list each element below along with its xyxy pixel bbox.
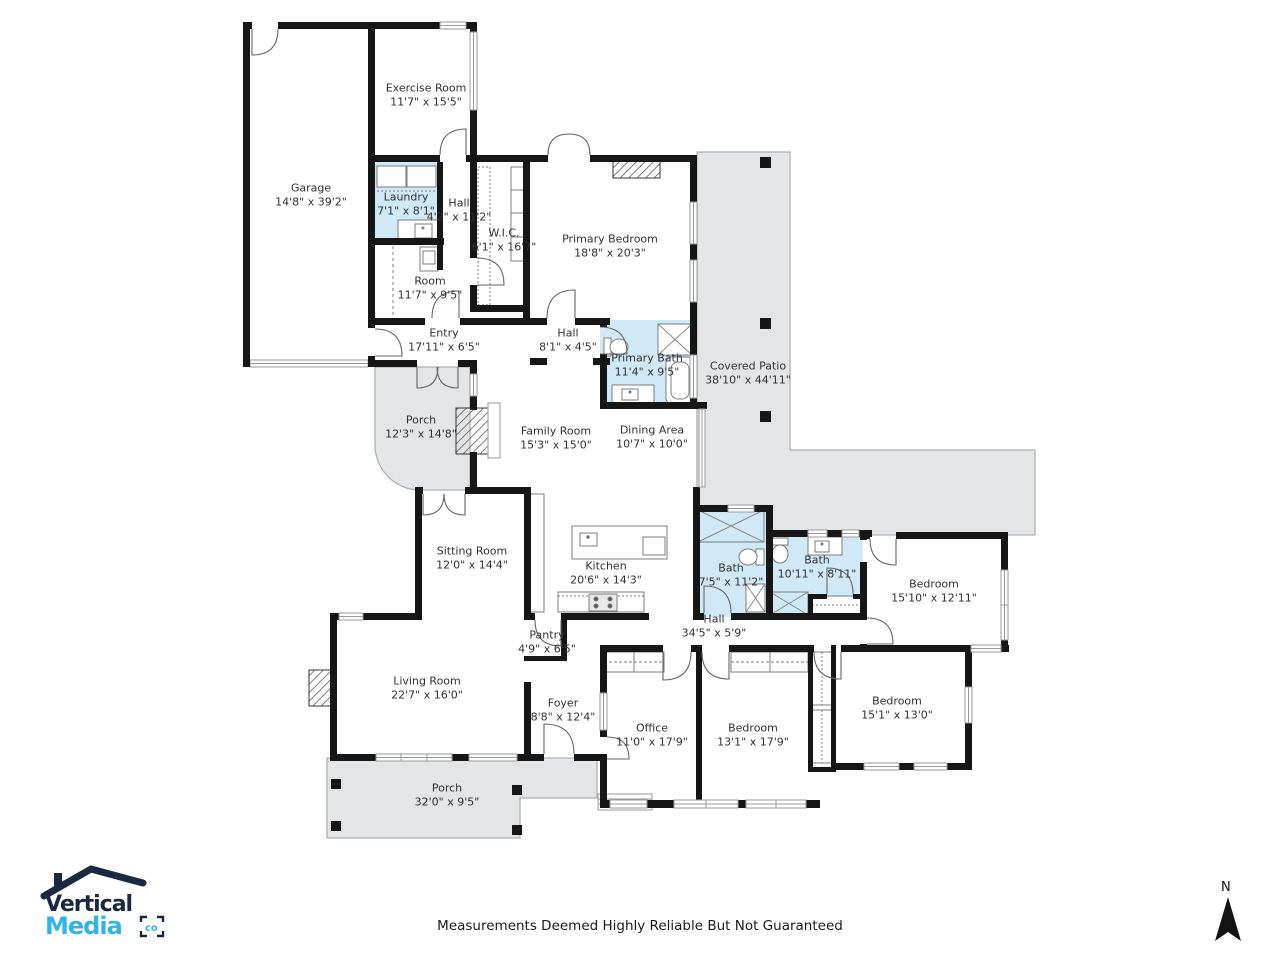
room-label-hall-b: Hall8'1" x 4'5"	[539, 327, 597, 356]
room-label-exercise-room: Exercise Room11'7" x 15'5"	[386, 82, 467, 111]
windows	[252, 22, 1008, 808]
room-label-dining-area: Dining Area10'7" x 10'0"	[616, 424, 688, 453]
room-label-wic: W.I.C.6'1" x 16'7"	[472, 227, 537, 256]
room-label-office: Office11'0" x 17'9"	[616, 722, 688, 751]
logo-chimney-icon	[54, 873, 62, 887]
room-label-living-room: Living Room22'7" x 16'0"	[391, 675, 463, 704]
room-label-hall-a: Hall4'2" x 11'2"	[427, 197, 492, 226]
room-label-room: Room11'7" x 9'5"	[398, 275, 463, 304]
room-label-bedroom-a: Bedroom15'10" x 12'11"	[891, 578, 977, 607]
room-label-porch-front: Porch32'0" x 9'5"	[415, 782, 480, 811]
room-label-family-room: Family Room15'3" x 15'0"	[520, 425, 592, 454]
floor-plan-page: Garage14'8" x 39'2" Exercise Room11'7" x…	[0, 0, 1280, 960]
room-label-pantry: Pantry4'9" x 6'5"	[518, 629, 576, 658]
room-label-garage: Garage14'8" x 39'2"	[275, 182, 347, 211]
room-label-covered-patio: Covered Patio38'10" x 44'11"	[705, 360, 791, 389]
walls	[243, 22, 1009, 808]
room-label-kitchen: Kitchen20'6" x 14'3"	[570, 560, 642, 589]
room-label-bath-a: Bath7'5" x 11'2"	[699, 562, 764, 591]
room-label-entry: Entry17'11" x 6'5"	[408, 327, 480, 356]
room-label-primary-bedroom: Primary Bedroom18'8" x 20'3"	[562, 233, 658, 262]
covered-patio-area	[697, 152, 1035, 535]
floor-plan-drawing	[0, 0, 1280, 960]
room-label-porch-rear: Porch12'3" x 14'8"	[385, 414, 457, 443]
disclaimer-text: Measurements Deemed Highly Reliable But …	[0, 918, 1280, 934]
compass-arrow-icon	[1204, 880, 1254, 950]
room-label-bedroom-c: Bedroom13'1" x 17'9"	[717, 722, 789, 751]
room-label-bedroom-b: Bedroom15'1" x 13'0"	[861, 695, 933, 724]
room-label-bath-b: Bath10'11" x 8'11"	[778, 554, 857, 583]
room-label-foyer: Foyer8'8" x 12'4"	[531, 697, 596, 726]
room-label-sitting-room: Sitting Room12'0" x 14'4"	[436, 545, 508, 574]
room-label-primary-bath: Primary Bath11'4" x 9'5"	[611, 352, 683, 381]
room-label-hall-c: Hall34'5" x 5'9"	[682, 613, 747, 642]
compass: N	[1204, 880, 1254, 950]
